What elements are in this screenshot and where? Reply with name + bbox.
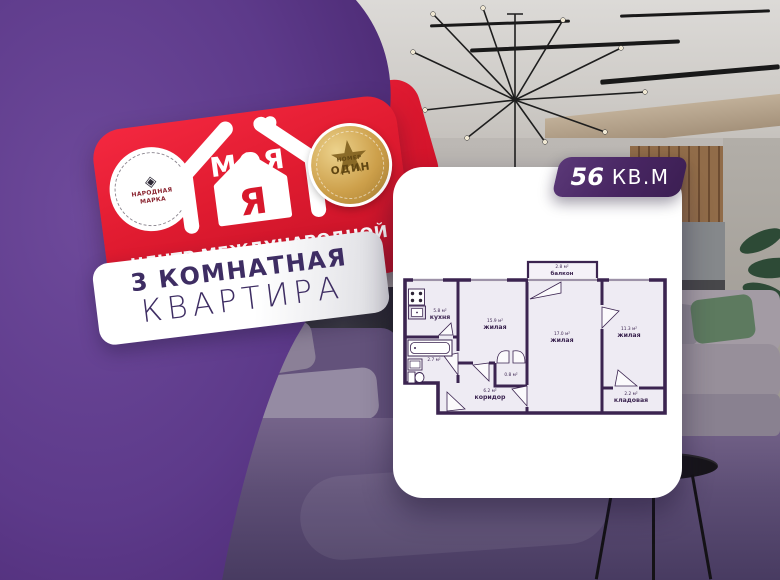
- area-unit: КВ.М: [612, 165, 670, 189]
- kitchen-sink-icon: [409, 306, 426, 319]
- promo-poster: ◈ НАРОДНАЯ МАРКА МОЯ Я ★ НОМЕР ОДИН ЦЕНТ…: [0, 0, 780, 580]
- room-label-living1: жилая: [483, 324, 506, 331]
- logo-letter: Я: [237, 180, 270, 224]
- floorplan: 5.8 м² кухня 15.9 м² жилая 17.0 м² жилая…: [403, 255, 671, 423]
- room-label-kitchen: кухня: [430, 314, 450, 321]
- stove-icon: [409, 289, 425, 305]
- room-area-closet: 0.8 м²: [504, 372, 517, 378]
- room-label-hall: коридор: [475, 394, 506, 401]
- room-label-balcony: балкон: [551, 270, 574, 277]
- room-label-living3: жилая: [617, 332, 640, 339]
- area-badge: 56 КВ.М: [551, 157, 688, 197]
- room-area-bathroom: 2.7 м²: [427, 357, 440, 363]
- room-label-living2: жилая: [550, 337, 573, 344]
- medal-text: НАРОДНАЯ: [131, 186, 173, 199]
- bath-sink-icon: [408, 359, 422, 370]
- toilet-icon: [408, 372, 424, 383]
- room-label-storage: кладовая: [614, 397, 648, 404]
- area-value: 56: [571, 163, 604, 191]
- medal-text: МАРКА: [140, 195, 167, 206]
- bathtub-icon: [408, 340, 452, 356]
- room-area-balcony: 2.8 м²: [555, 264, 568, 270]
- diamond-icon: ◈: [144, 173, 157, 189]
- floorplan-card: 5.8 м² кухня 15.9 м² жилая 17.0 м² жилая…: [393, 167, 682, 498]
